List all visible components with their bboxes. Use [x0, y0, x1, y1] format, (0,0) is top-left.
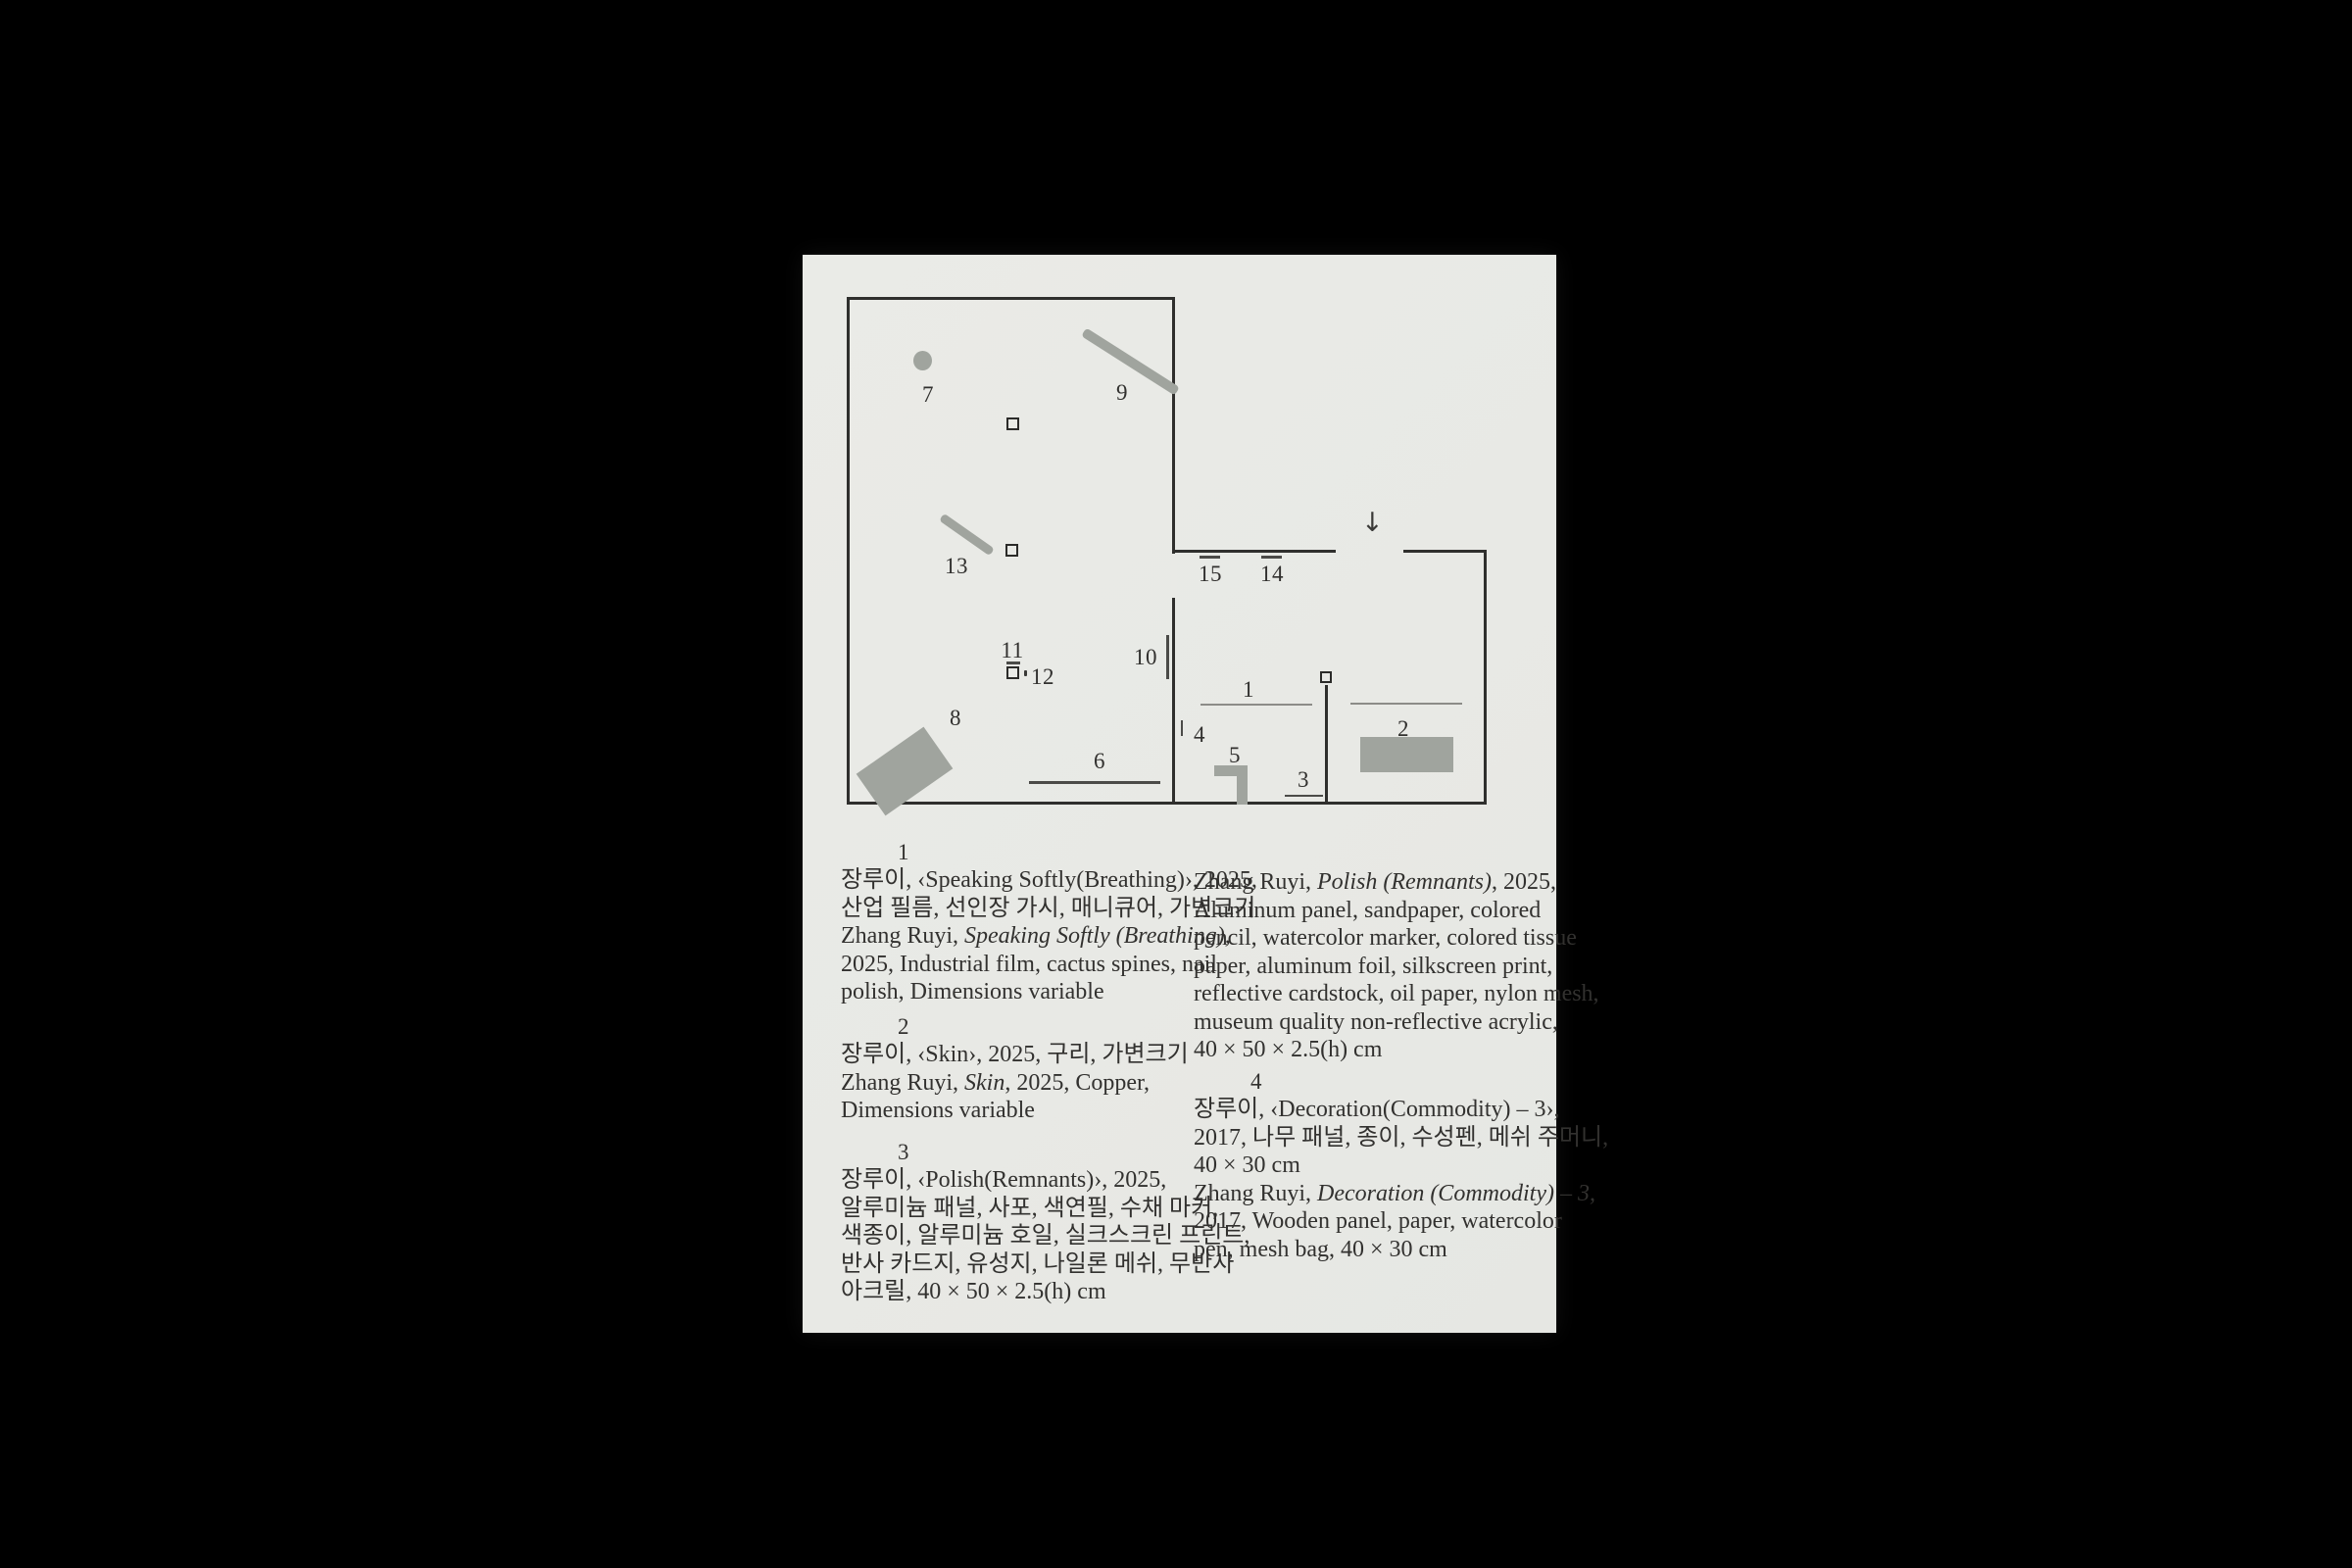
- caption-block-2: 2장루이, ‹Skin›, 2025, 구리, 가변크기Zhang Ruyi, …: [841, 1041, 1168, 1125]
- caption-line: paper, aluminum foil, silkscreen print,: [1194, 953, 1521, 981]
- caption-line: 반사 카드지, 유성지, 나일론 메쉬, 무반사: [841, 1250, 1168, 1279]
- caption-number: 2: [898, 1015, 909, 1038]
- caption-line: Dimensions variable: [841, 1097, 1168, 1125]
- caption-line: museum quality non-reflective acrylic,: [1194, 1008, 1521, 1037]
- caption-line: 40 × 50 × 2.5(h) cm: [1194, 1036, 1521, 1064]
- caption-line: 2017, Wooden panel, paper, watercolor: [1194, 1207, 1521, 1236]
- caption-number: 1: [898, 841, 909, 863]
- caption-line: 알루미늄 패널, 사포, 색연필, 수채 마커,: [841, 1195, 1168, 1223]
- photo-background: ↓ 123456789101112131415: [0, 0, 2352, 1568]
- door-gap-between-rooms: [1171, 554, 1177, 598]
- caption-block-1: 1장루이, ‹Speaking Softly(Breathing)›, 2025…: [841, 866, 1168, 1006]
- caption-line: Zhang Ruyi, Decoration (Commodity) – 3,: [1194, 1180, 1521, 1208]
- caption-line: 2017, 나무 패널, 종이, 수성펜, 메쉬 주머니,: [1194, 1124, 1521, 1152]
- caption-block-continued: Zhang Ruyi, Polish (Remnants), 2025,Alum…: [1194, 868, 1521, 1064]
- caption-number: 3: [898, 1141, 909, 1163]
- caption-line: 아크릴, 40 × 50 × 2.5(h) cm: [841, 1278, 1168, 1306]
- caption-line: 장루이, ‹Speaking Softly(Breathing)›, 2025,: [841, 866, 1168, 895]
- caption-column-left: 1장루이, ‹Speaking Softly(Breathing)›, 2025…: [841, 255, 1168, 1333]
- caption-line: polish, Dimensions variable: [841, 978, 1168, 1006]
- caption-line: Zhang Ruyi, Polish (Remnants), 2025,: [1194, 868, 1521, 897]
- caption-line: pencil, watercolor marker, colored tissu…: [1194, 924, 1521, 953]
- caption-line: 색종이, 알루미늄 호일, 실크스크린 프린트,: [841, 1222, 1168, 1250]
- caption-line: 장루이, ‹Skin›, 2025, 구리, 가변크기: [841, 1041, 1168, 1069]
- caption-line: 산업 필름, 선인장 가시, 매니큐어, 가변크기: [841, 895, 1168, 923]
- caption-number: 4: [1250, 1070, 1262, 1093]
- caption-block-4: 4장루이, ‹Decoration(Commodity) – 3›,2017, …: [1194, 1096, 1521, 1263]
- caption-block-3: 3장루이, ‹Polish(Remnants)›, 2025,알루미늄 패널, …: [841, 1166, 1168, 1306]
- caption-line: pen, mesh bag, 40 × 30 cm: [1194, 1236, 1521, 1264]
- caption-line: reflective cardstock, oil paper, nylon m…: [1194, 980, 1521, 1008]
- caption-line: 장루이, ‹Decoration(Commodity) – 3›,: [1194, 1096, 1521, 1124]
- caption-line: 장루이, ‹Polish(Remnants)›, 2025,: [841, 1166, 1168, 1195]
- artwork-4-tick: [1181, 720, 1183, 736]
- caption-line: 40 × 30 cm: [1194, 1151, 1521, 1180]
- caption-line: Aluminum panel, sandpaper, colored: [1194, 897, 1521, 925]
- caption-line: 2025, Industrial film, cactus spines, na…: [841, 951, 1168, 979]
- exhibition-handout-page: ↓ 123456789101112131415: [803, 255, 1556, 1333]
- caption-column-right: Zhang Ruyi, Polish (Remnants), 2025,Alum…: [1194, 255, 1521, 1333]
- caption-line: Zhang Ruyi, Speaking Softly (Breathing),: [841, 922, 1168, 951]
- caption-line: Zhang Ruyi, Skin, 2025, Copper,: [841, 1069, 1168, 1098]
